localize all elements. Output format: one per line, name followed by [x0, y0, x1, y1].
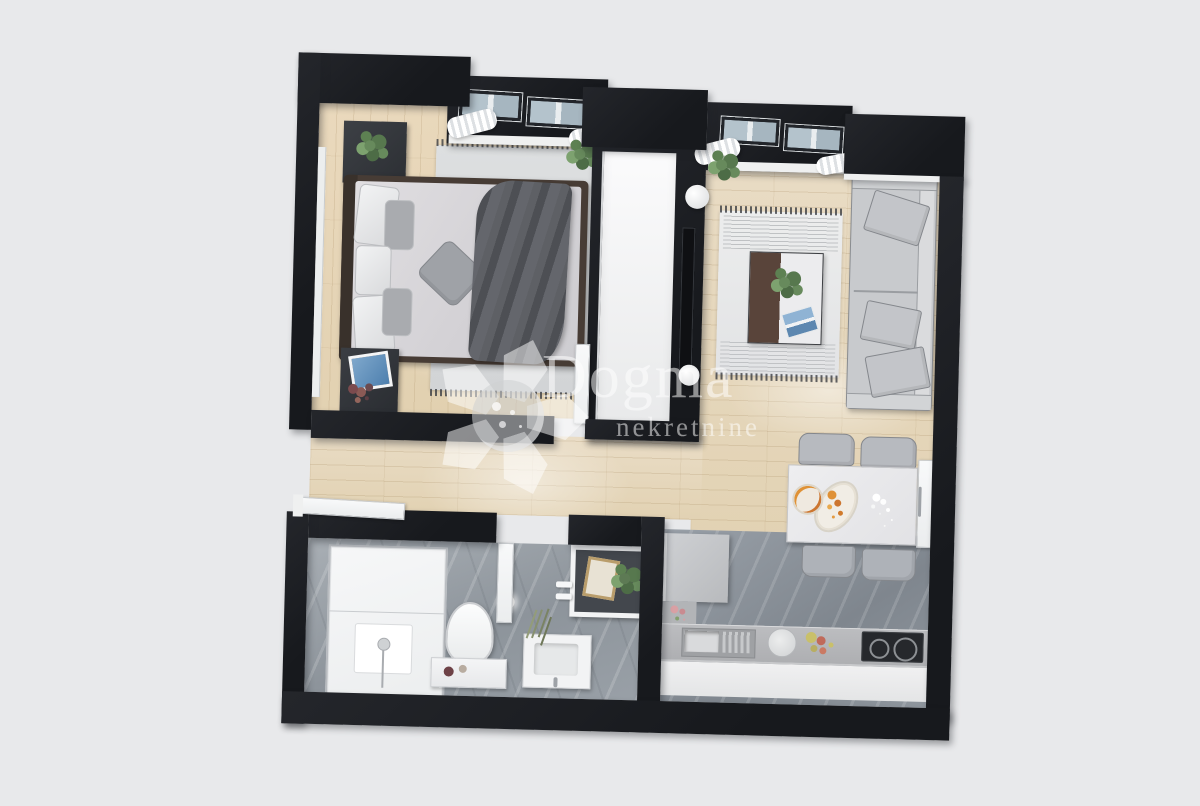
- living-window-pane-2: [784, 124, 843, 153]
- wall-niche-top-block: [581, 87, 708, 150]
- wall-bathroom-top-2: [568, 515, 642, 547]
- cooktop-burner-small: [869, 639, 890, 660]
- bedroom-nightstand: [339, 348, 399, 413]
- niche-picture-frame: [582, 556, 620, 601]
- dining-chair-top-2: [860, 436, 917, 469]
- cooktop-burner-large: [893, 637, 918, 662]
- vanity-faucet-icon: [553, 677, 557, 687]
- watermark-tagline: nekretnine: [616, 412, 760, 443]
- induction-cooktop: [861, 631, 924, 663]
- watermark-brand: Dogma: [542, 342, 735, 413]
- cabinet-accessory-light: [459, 665, 467, 673]
- sofa-seat-divider: [854, 290, 918, 294]
- niche-fern-icon: [619, 573, 630, 584]
- shelf-flowers-icon: [670, 605, 678, 613]
- sofa: [846, 173, 938, 411]
- sink-drainer: [722, 632, 752, 654]
- kitchen-sink: [681, 628, 756, 659]
- logo-center-dots: [492, 402, 501, 411]
- bathroom-door-leaf: [496, 543, 514, 623]
- dining-chair-bottom-2: [861, 548, 916, 581]
- towel-hook-1: [556, 581, 572, 587]
- sofa-armrest-bottom: [847, 393, 931, 410]
- dining-chair-bottom-1: [801, 545, 856, 578]
- vanity-basin: [534, 643, 579, 676]
- logo-center-circle: [472, 380, 544, 452]
- nightstand-dried-flowers-icon: [348, 384, 358, 394]
- toilet-cabinet: [430, 657, 507, 689]
- towel-hook-2: [556, 593, 572, 599]
- wall-top-right-block: [844, 114, 966, 181]
- walk-in-shower: [325, 544, 448, 699]
- sofa-cushion-2: [859, 300, 922, 350]
- bedroom-window-pane-2: [527, 97, 591, 129]
- rug-texture-top: [723, 215, 839, 252]
- watermark: Dogma nekretnine: [430, 330, 830, 490]
- vanity-sink: [522, 633, 591, 689]
- refrigerator: [663, 533, 730, 603]
- sink-basin: [684, 631, 719, 653]
- entry-door-frame: [293, 494, 304, 516]
- cabinet-accessory-dark: [444, 666, 454, 676]
- bed-pillow-gray-bottom: [381, 288, 412, 337]
- wall-top-left-block: [298, 52, 471, 106]
- floor-plan-render-canvas: { "watermark": { "brand": "Dogma", "tagl…: [0, 0, 1200, 806]
- kitchen-counter-front: [660, 659, 927, 702]
- bed-pillow-gray-top: [384, 200, 415, 251]
- shower-glass-line: [329, 610, 444, 614]
